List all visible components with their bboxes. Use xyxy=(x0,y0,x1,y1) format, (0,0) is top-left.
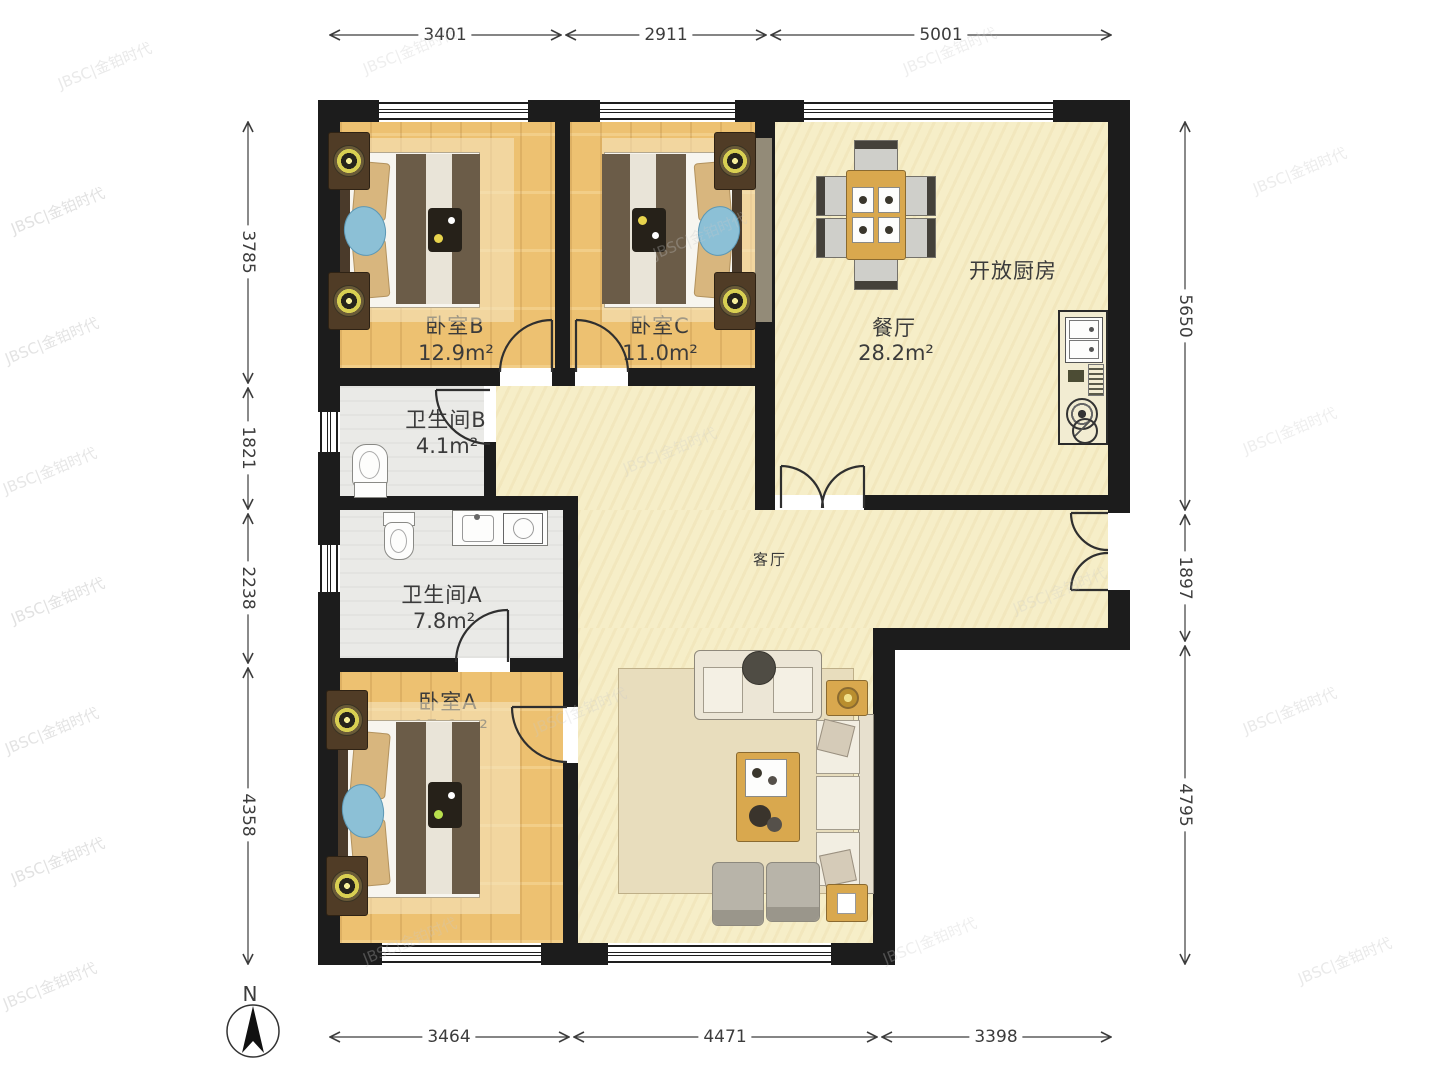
side-table xyxy=(826,884,868,922)
wall xyxy=(318,658,458,672)
tray-item xyxy=(638,216,647,225)
dimension-label: 3785 xyxy=(238,225,258,278)
bedroom-b-area: 12.9m² xyxy=(418,341,494,365)
kitchen-sink xyxy=(1065,317,1103,363)
placemat xyxy=(852,217,874,243)
dining-chair xyxy=(854,140,898,174)
sofa-cushion xyxy=(816,776,860,830)
door-opening xyxy=(575,368,628,386)
watermark: JBSC|金铂时代 xyxy=(2,702,102,759)
stove-burner-icon xyxy=(1072,418,1098,444)
sink xyxy=(462,515,494,542)
dimension-label: 4795 xyxy=(1175,778,1195,831)
tray-item xyxy=(652,232,659,239)
wall xyxy=(873,628,1130,650)
tray-item xyxy=(434,810,443,819)
kitchen-appliance xyxy=(1068,370,1084,382)
dimension-label: 1897 xyxy=(1175,551,1195,604)
window xyxy=(320,412,338,452)
wall xyxy=(528,100,600,122)
placemat xyxy=(852,187,874,213)
dining-area: 28.2m² xyxy=(858,341,934,365)
chair-back xyxy=(927,177,935,215)
dining-chair xyxy=(902,218,936,258)
book xyxy=(837,893,856,914)
nightstand xyxy=(714,132,756,190)
dining-chair xyxy=(902,176,936,216)
dining-chair xyxy=(816,176,850,216)
lamp-icon xyxy=(719,285,751,317)
wall xyxy=(484,442,496,500)
dining-chair xyxy=(854,256,898,290)
wall xyxy=(318,496,578,510)
floorplan-canvas: 卧室B 12.9m² 卧室C 11.0m² 开放厨房 餐厅 28.2m² 卫生间… xyxy=(0,0,1440,1080)
kitchen-counter xyxy=(1058,310,1108,445)
dining-chair xyxy=(816,218,850,258)
bathroom-b-label: 卫生间B xyxy=(405,404,486,434)
bathroom-b-area: 4.1m² xyxy=(416,434,478,458)
tray xyxy=(745,759,787,797)
vase xyxy=(767,817,782,832)
watermark: JBSC|金铂时代 xyxy=(2,312,102,369)
lamp-icon xyxy=(719,145,751,177)
nightstand xyxy=(328,132,370,190)
vanity-counter xyxy=(452,510,548,546)
watermark: JBSC|金铂时代 xyxy=(1240,402,1340,459)
dining-label: 餐厅 xyxy=(872,312,916,342)
toilet xyxy=(382,512,416,560)
north-arrow-icon xyxy=(227,1005,279,1057)
chair-back xyxy=(855,141,897,149)
placemat xyxy=(878,187,900,213)
entrance-opening xyxy=(1108,513,1130,590)
wall xyxy=(563,672,578,707)
wall xyxy=(318,943,382,965)
living-room-label: 客厅 xyxy=(753,549,787,570)
wall xyxy=(873,650,895,965)
wall xyxy=(541,943,608,965)
lamp-icon xyxy=(331,870,363,902)
nightstand xyxy=(326,856,368,916)
wall xyxy=(1108,100,1130,513)
chair-back xyxy=(855,281,897,289)
wall xyxy=(340,368,500,386)
bed-tray xyxy=(428,208,462,252)
hallway-floor xyxy=(578,510,1108,628)
dimension-label: 4358 xyxy=(238,788,258,841)
sofa-cushion xyxy=(773,667,813,713)
window xyxy=(379,102,528,120)
watermark: JBSC|金铂时代 xyxy=(0,957,100,1014)
bathroom-a-area: 7.8m² xyxy=(413,609,475,633)
lamp-icon xyxy=(333,145,365,177)
kitchen-label: 开放厨房 xyxy=(969,255,1057,285)
washer xyxy=(503,513,543,544)
dimension-label: 3398 xyxy=(969,1027,1022,1047)
toilet xyxy=(350,444,390,498)
ottoman xyxy=(712,862,764,926)
wall xyxy=(555,122,570,377)
nightstand xyxy=(326,690,368,750)
kitchen-rack xyxy=(1088,364,1104,396)
lamp-icon xyxy=(331,704,363,736)
chair-back xyxy=(927,219,935,257)
side-table xyxy=(826,680,868,716)
window xyxy=(382,945,541,963)
window xyxy=(804,102,1053,120)
wall xyxy=(864,495,1108,510)
dimension-label: 3464 xyxy=(422,1027,475,1047)
watermark: JBSC|金铂时代 xyxy=(1240,682,1340,739)
bed-tray xyxy=(428,782,462,828)
door-opening xyxy=(563,707,578,763)
dimension-label: 5650 xyxy=(1175,289,1195,342)
dimension-label: 2238 xyxy=(238,561,258,614)
north-label: N xyxy=(238,982,263,1006)
wall xyxy=(735,100,804,122)
watermark: JBSC|金铂时代 xyxy=(8,182,108,239)
sofa-back xyxy=(858,714,874,894)
window xyxy=(608,945,831,963)
loveseat-sofa xyxy=(694,650,822,720)
round-side-table xyxy=(742,651,776,685)
door-opening xyxy=(458,658,510,672)
dimension-label: 5001 xyxy=(914,25,967,45)
watermark: JBSC|金铂时代 xyxy=(8,572,108,629)
dining-table xyxy=(846,170,906,260)
bedroom-c-area: 11.0m² xyxy=(622,341,698,365)
dimension-label: 2911 xyxy=(639,25,692,45)
window xyxy=(320,545,338,592)
dimension-label: 3401 xyxy=(418,25,471,45)
door-opening xyxy=(500,368,552,386)
tray-item xyxy=(434,234,443,243)
dimension-label: 1821 xyxy=(238,421,258,474)
throw-pillow xyxy=(819,849,857,887)
nightstand xyxy=(328,272,370,330)
wall xyxy=(628,368,755,386)
door-opening xyxy=(775,495,864,510)
lamp-icon xyxy=(333,285,365,317)
watermark: JBSC|金铂时代 xyxy=(1295,932,1395,989)
wall xyxy=(552,368,575,386)
tray-item xyxy=(448,792,455,799)
coffee-table xyxy=(736,752,800,842)
sofa xyxy=(814,714,872,892)
bathroom-a-label: 卫生间A xyxy=(401,579,482,609)
lamp-icon xyxy=(837,687,859,709)
watermark: JBSC|金铂时代 xyxy=(1250,142,1350,199)
tray-item xyxy=(448,217,455,224)
nightstand xyxy=(714,272,756,330)
wall xyxy=(510,658,578,672)
dimension-label: 4471 xyxy=(698,1027,751,1047)
sofa-cushion xyxy=(703,667,743,713)
placemat xyxy=(878,217,900,243)
chair-back xyxy=(817,177,825,215)
wall xyxy=(563,510,578,672)
watermark: JBSC|金铂时代 xyxy=(8,832,108,889)
ottoman xyxy=(766,862,820,922)
wall xyxy=(563,763,578,943)
watermark: JBSC|金铂时代 xyxy=(0,442,100,499)
corridor-floor xyxy=(496,386,755,510)
window xyxy=(600,102,735,120)
watermark: JBSC|金铂时代 xyxy=(55,37,155,94)
bed-tray xyxy=(632,208,666,252)
chair-back xyxy=(817,219,825,257)
